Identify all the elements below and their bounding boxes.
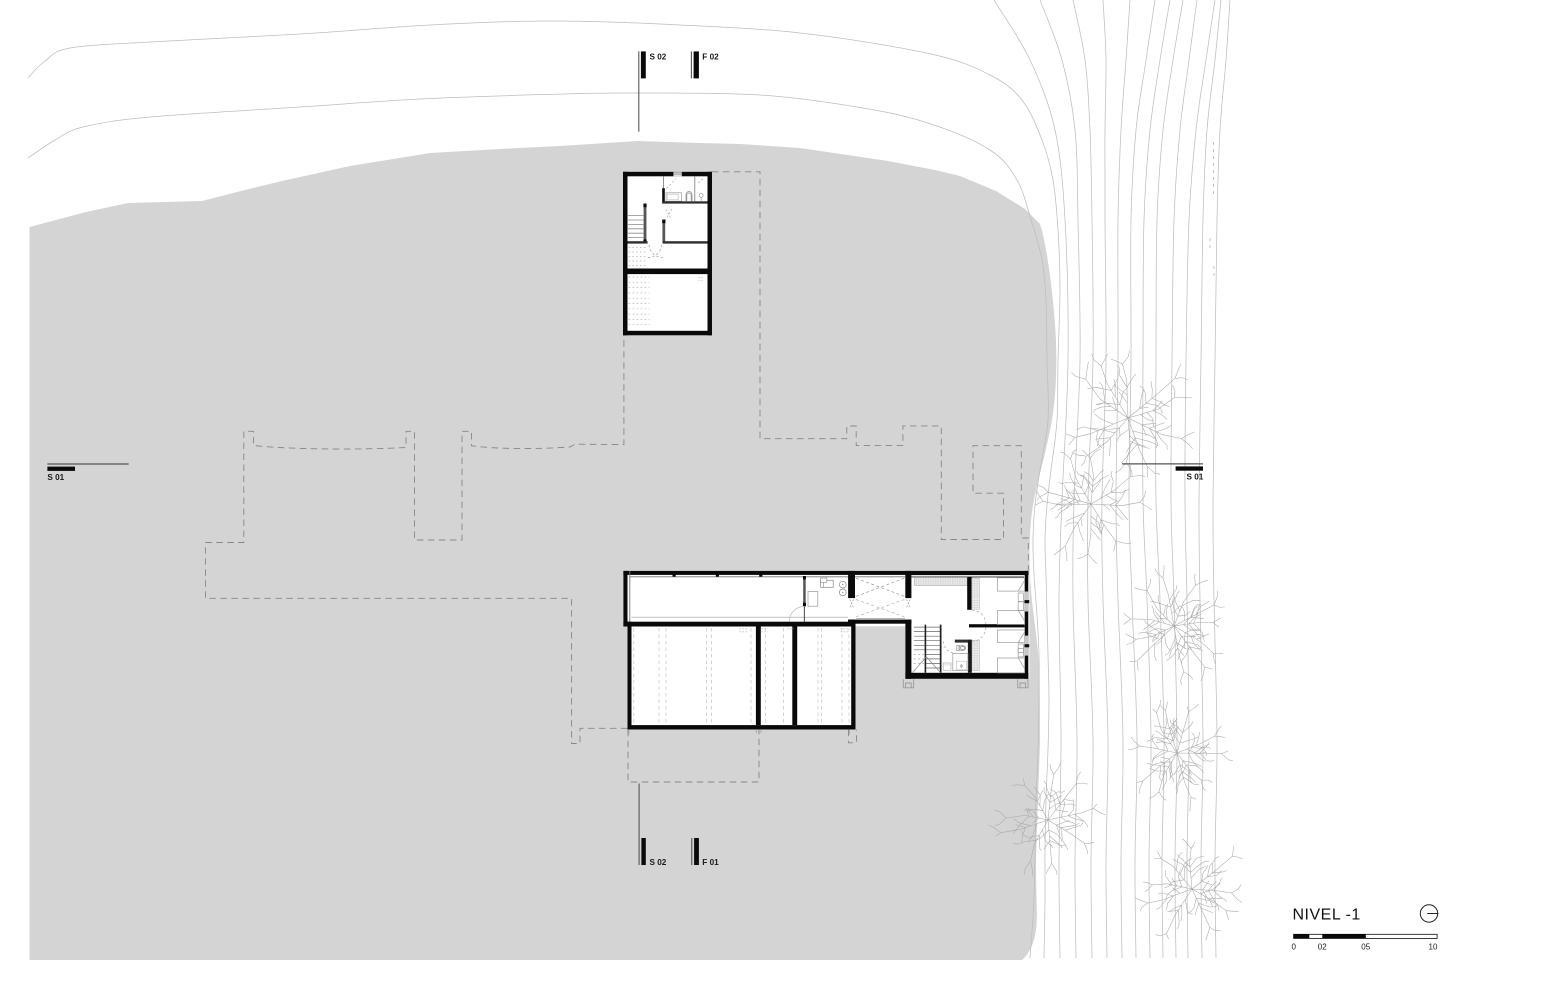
svg-text:10: 10: [1429, 943, 1438, 952]
svg-text:0: 0: [1292, 943, 1297, 952]
svg-text:S 02: S 02: [650, 858, 667, 867]
svg-text:S 01: S 01: [47, 473, 64, 482]
svg-text:NIVEL -1: NIVEL -1: [1293, 907, 1361, 924]
svg-text:F 02: F 02: [702, 53, 719, 62]
svg-text:S 02: S 02: [650, 53, 667, 62]
svg-text:02: 02: [1318, 943, 1327, 952]
svg-text:S 01: S 01: [1187, 473, 1204, 482]
svg-text:F 01: F 01: [702, 858, 719, 867]
svg-text:05: 05: [1361, 943, 1370, 952]
